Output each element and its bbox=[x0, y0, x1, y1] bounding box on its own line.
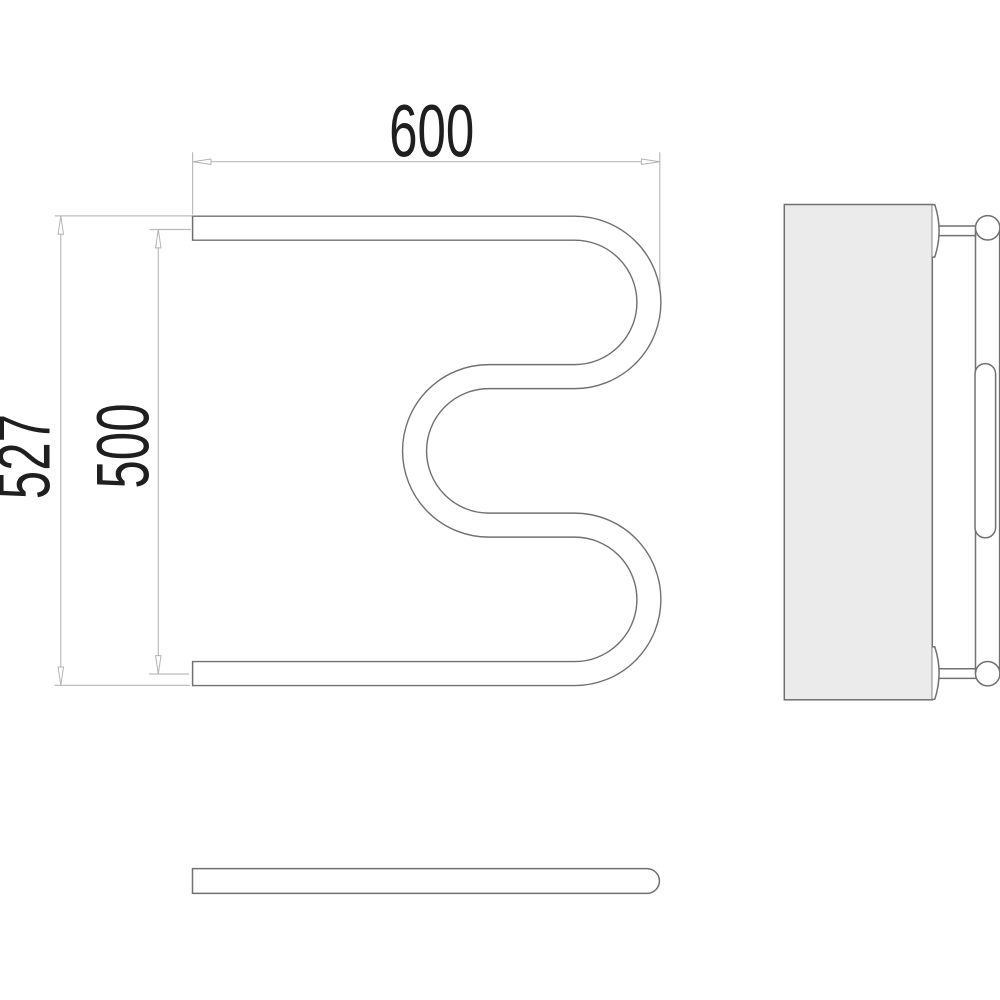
svg-text:500: 500 bbox=[82, 403, 165, 488]
svg-text:527: 527 bbox=[0, 414, 66, 499]
svg-text:600: 600 bbox=[389, 90, 474, 173]
